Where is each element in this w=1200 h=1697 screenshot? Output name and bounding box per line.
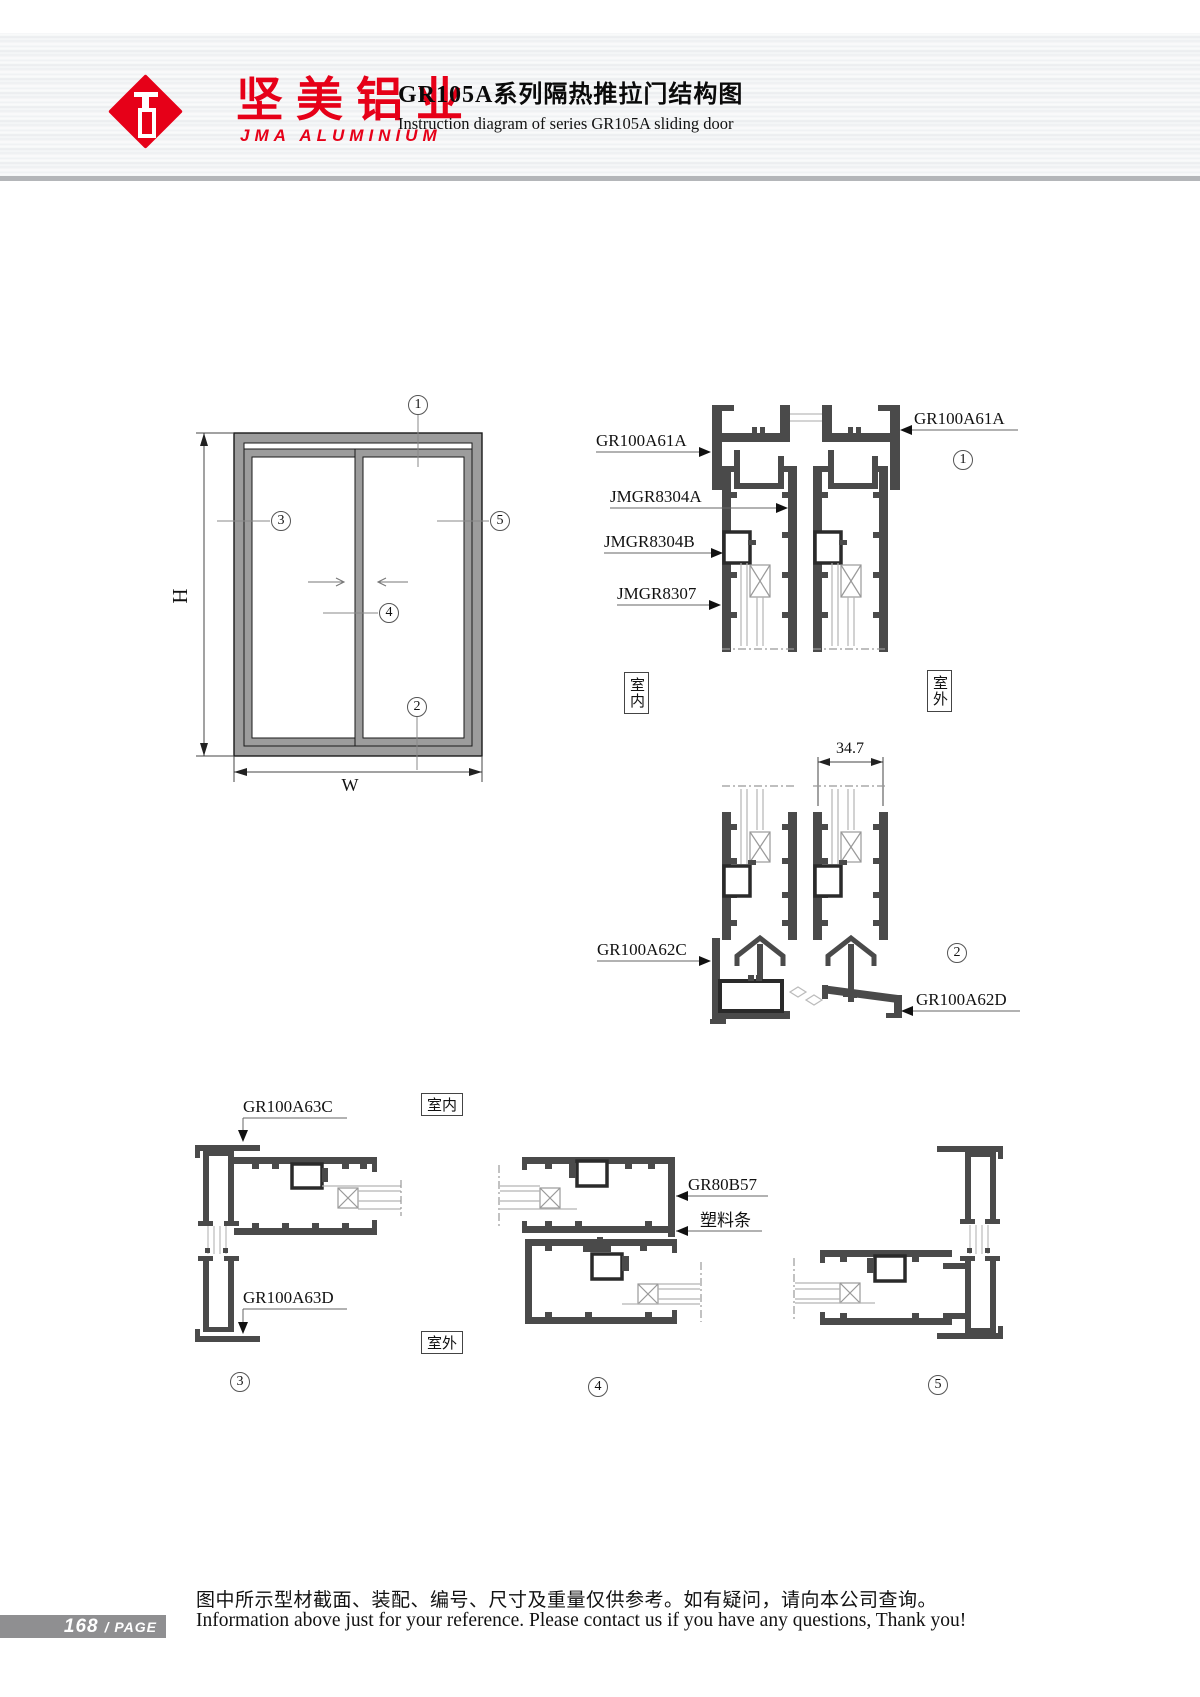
page-number-suffix: / PAGE [105, 1616, 157, 1639]
label-gr100a63c: GR100A63C [243, 1097, 333, 1116]
elevation-callout-4: 4 [379, 603, 399, 623]
detail-2-bottom-section: 34.7 [597, 740, 1020, 1024]
elevation-view: H W [168, 415, 489, 795]
indoor-tag-vertical: 室内 [624, 672, 649, 714]
detail-4-meeting-stiles: GR80B57 塑料条 [499, 1157, 768, 1324]
label-gr100a61a-left: GR100A61A [596, 431, 687, 450]
elevation-callout-1: 1 [408, 395, 428, 415]
detail-3-number: 3 [230, 1372, 250, 1392]
label-jmgr8304b: JMGR8304B [604, 532, 695, 551]
label-gr100a61a-right: GR100A61A [914, 409, 1005, 428]
detail-3-left-jamb: GR100A63C GR100A63D [195, 1097, 401, 1342]
label-jmgr8304a: JMGR8304A [610, 487, 702, 506]
footer-note-chinese: 图中所示型材截面、装配、编号、尺寸及重量仅供参考。如有疑问，请向本公司查询。 [196, 1585, 937, 1612]
dimension-34-7: 34.7 [836, 740, 864, 757]
elevation-callout-5: 5 [490, 511, 510, 531]
indoor-tag-horizontal: 室内 [421, 1093, 463, 1116]
label-gr100a62d: GR100A62D [916, 990, 1007, 1009]
h-dimension-label: H [168, 588, 192, 603]
outdoor-tag-vertical: 室外 [927, 670, 952, 712]
detail-5-number: 5 [928, 1375, 948, 1395]
elevation-callout-2: 2 [407, 697, 427, 717]
detail-1-top-section: GR100A61A GR100A61A JMGR8304A JMGR8304B … [596, 405, 1018, 652]
label-gr100a63d: GR100A63D [243, 1288, 334, 1307]
structure-diagram: H W [0, 0, 1200, 1697]
label-gr80b57: GR80B57 [688, 1175, 757, 1194]
outdoor-tag-horizontal: 室外 [421, 1331, 463, 1354]
detail-5-right-jamb [794, 1146, 1003, 1339]
page-number: 168 [64, 1615, 99, 1638]
catalog-page: 坚美铝业 JMA ALUMINIUM GR105A系列隔热推拉门结构图 Inst… [0, 0, 1200, 1697]
detail-2-number: 2 [947, 943, 967, 963]
h-dimension [196, 433, 234, 756]
detail-4-number: 4 [588, 1377, 608, 1397]
w-dimension-label: W [342, 775, 359, 795]
label-jmgr8307: JMGR8307 [617, 584, 697, 603]
footer-note-english: Information above just for your referenc… [196, 1610, 966, 1632]
elevation-callout-3: 3 [271, 511, 291, 531]
label-plastic-strip: 塑料条 [700, 1211, 751, 1230]
label-gr100a62c: GR100A62C [597, 940, 687, 959]
page-number-badge: 168 / PAGE [0, 1615, 166, 1638]
detail-1-number: 1 [953, 450, 973, 470]
